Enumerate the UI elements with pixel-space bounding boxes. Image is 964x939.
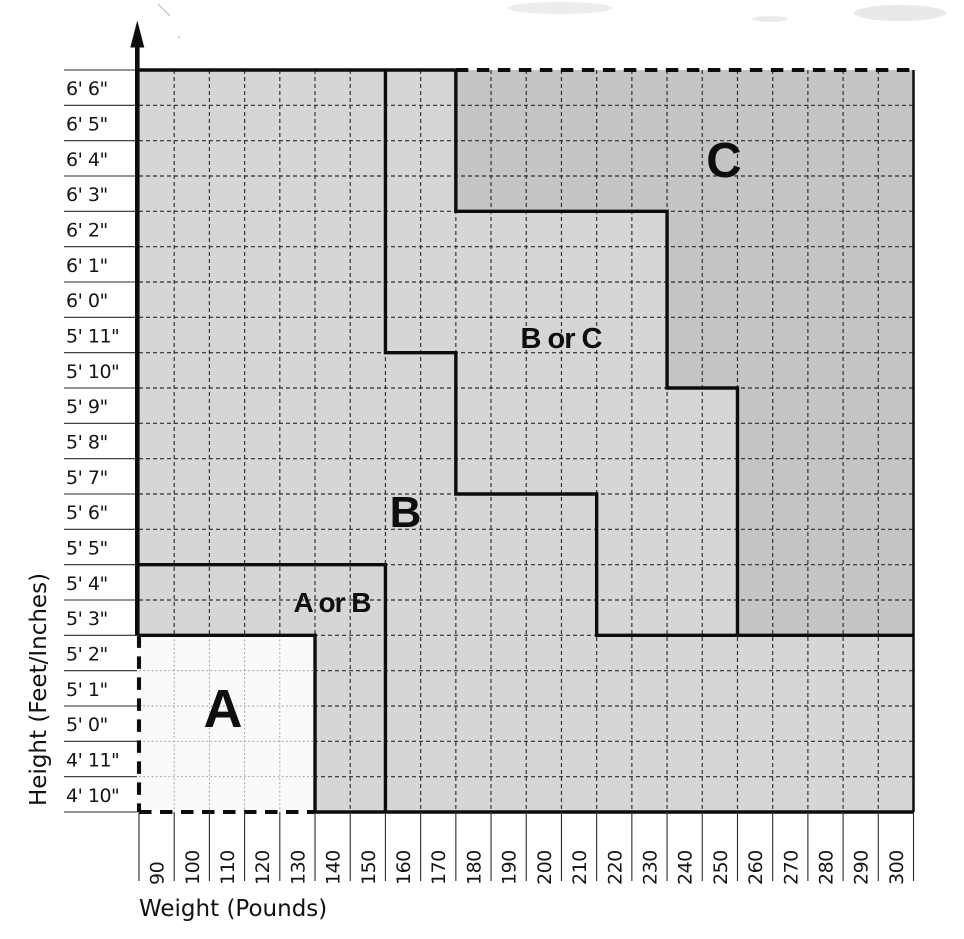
height-tick-label: 5' 0"	[66, 714, 108, 736]
weight-tick-label: 120	[252, 850, 274, 885]
height-tick-label: 6' 4"	[66, 149, 108, 171]
y-axis-title: Height (Feet/Inches)	[26, 573, 52, 806]
weight-tick-label: 170	[428, 850, 450, 885]
weight-tick-label: 260	[745, 850, 767, 885]
weight-tick-label: 230	[639, 850, 661, 885]
height-tick-label: 5' 6"	[66, 502, 108, 524]
height-tick-label: 4' 11"	[66, 750, 119, 772]
zone-label-c: C	[706, 134, 741, 188]
size-chart-page: 6' 6"6' 5"6' 4"6' 3"6' 2"6' 1"6' 0"5' 11…	[0, 0, 964, 939]
height-tick-label: 5' 3"	[66, 608, 108, 630]
weight-tick-label: 210	[569, 850, 591, 885]
weight-tick-label: 110	[217, 850, 239, 885]
weight-tick-label: 280	[815, 850, 837, 885]
y-axis-arrow-icon	[130, 21, 144, 48]
weight-tick-label: 200	[534, 850, 556, 885]
weight-tick-label: 270	[780, 850, 802, 885]
weight-tick-label: 190	[499, 850, 521, 885]
height-tick-label: 5' 1"	[66, 679, 108, 701]
height-tick-label: 6' 6"	[66, 78, 108, 100]
height-tick-label: 6' 2"	[66, 220, 108, 242]
height-tick-label: 5' 7"	[66, 467, 108, 489]
height-tick-label: 4' 10"	[66, 785, 119, 807]
height-tick-label: 5' 10"	[66, 361, 119, 383]
height-tick-label: 5' 9"	[66, 396, 108, 418]
weight-tick-label: 150	[358, 850, 380, 885]
weight-tick-label: 290	[851, 850, 873, 885]
weight-tick-label: 220	[604, 850, 626, 885]
zone-label-b: B	[390, 488, 422, 537]
weight-tick-label: 240	[675, 850, 697, 885]
height-tick-label: 5' 2"	[66, 644, 108, 666]
height-tick-label: 5' 11"	[66, 326, 119, 348]
weight-tick-label: 250	[710, 850, 732, 885]
height-tick-label: 5' 4"	[66, 573, 108, 595]
x-axis-title: Weight (Pounds)	[139, 896, 327, 922]
height-tick-label: 6' 0"	[66, 290, 108, 312]
height-tick-label: 5' 8"	[66, 432, 108, 454]
height-tick-label: 6' 5"	[66, 114, 108, 136]
weight-tick-label: 180	[463, 850, 485, 885]
weight-tick-label: 140	[323, 850, 345, 885]
weight-tick-label: 90	[147, 862, 169, 885]
zone-label-a: A	[204, 679, 243, 739]
weight-tick-label: 130	[287, 850, 309, 885]
weight-tick-label: 160	[393, 850, 415, 885]
zone-label-a-or-b: A or B	[294, 587, 371, 618]
scan-artifacts	[158, 2, 946, 38]
height-tick-label: 6' 3"	[66, 184, 108, 206]
weight-tick-label: 300	[886, 850, 908, 885]
zone-label-b-or-c: B or C	[521, 323, 603, 355]
height-tick-label: 6' 1"	[66, 255, 108, 277]
height-tick-label: 5' 5"	[66, 538, 108, 560]
weight-tick-label: 100	[182, 850, 204, 885]
height-weight-size-chart: 6' 6"6' 5"6' 4"6' 3"6' 2"6' 1"6' 0"5' 11…	[0, 0, 964, 939]
